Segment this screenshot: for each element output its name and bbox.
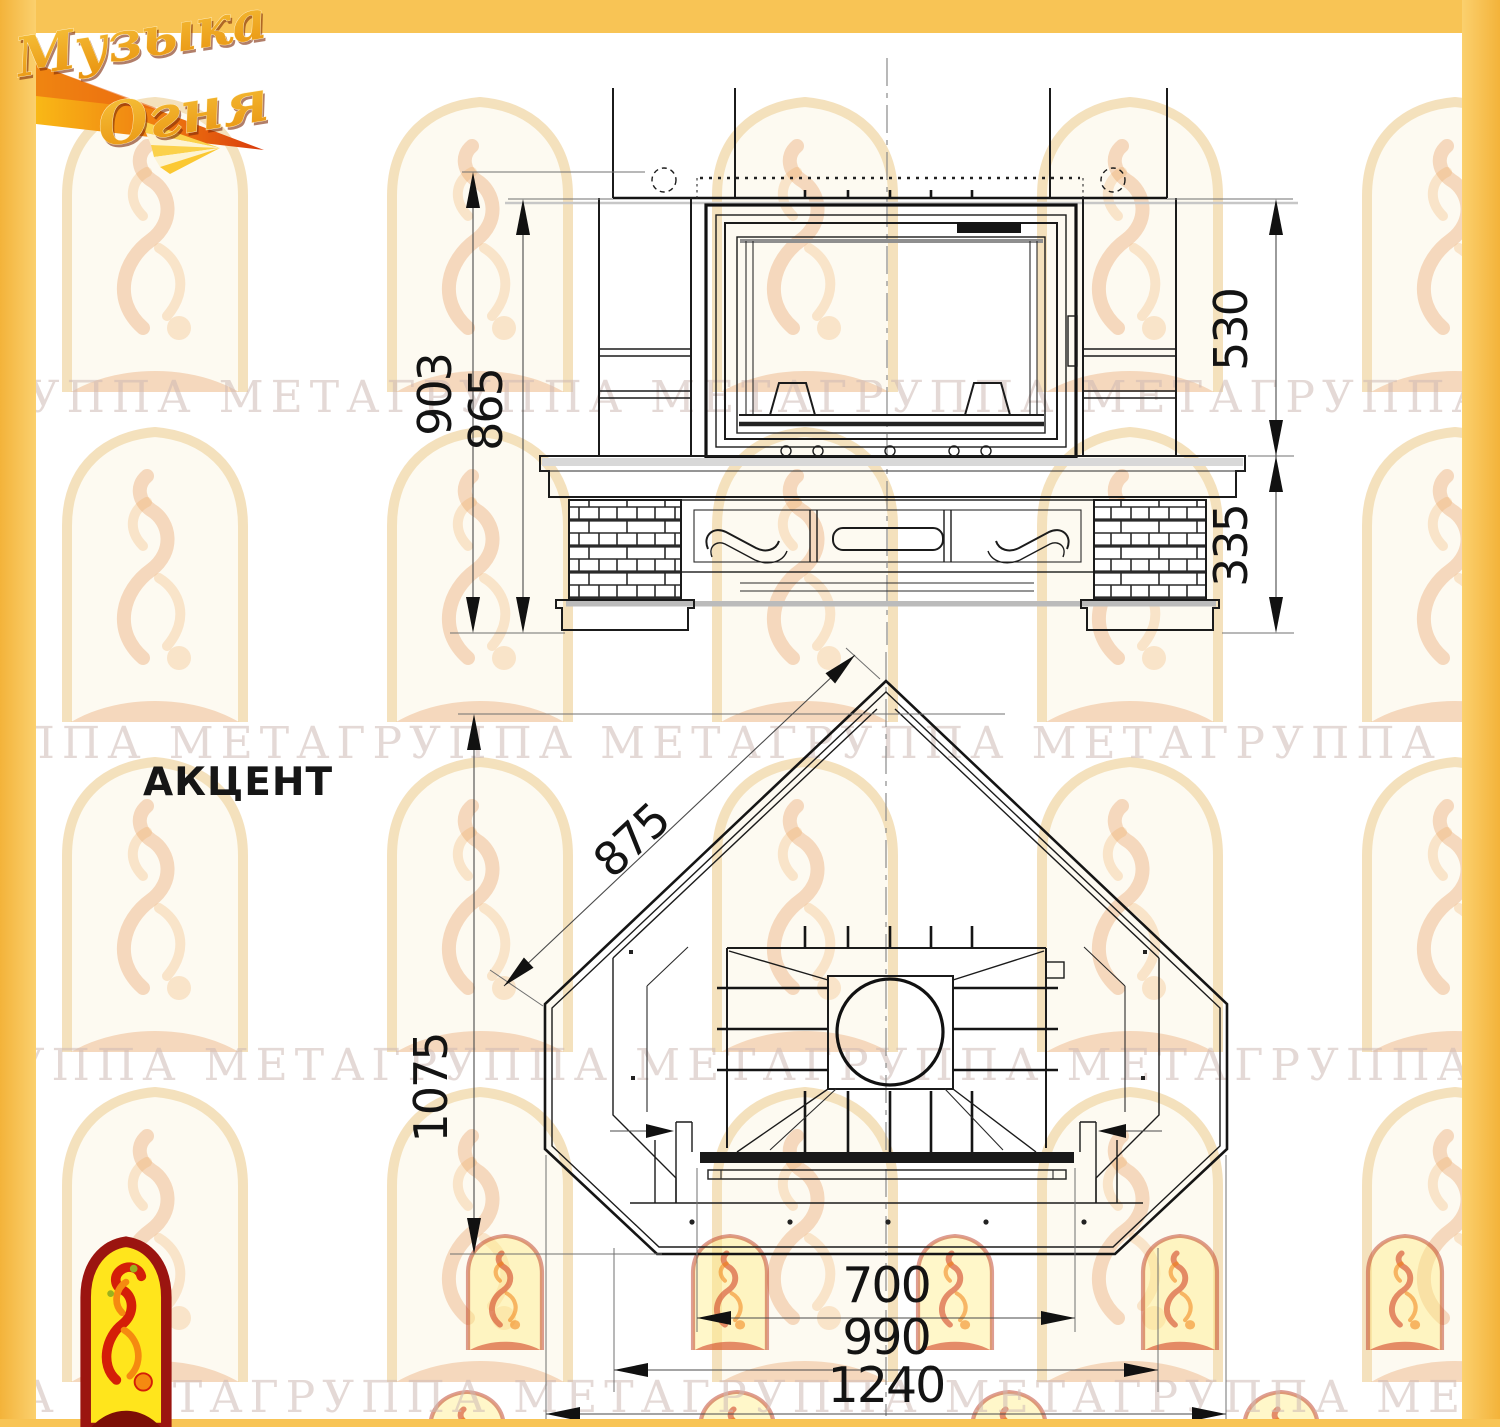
apron-scroll-left — [706, 530, 779, 550]
apron-scroll-right — [996, 530, 1069, 550]
dim-overall-height-label: 903 — [408, 354, 462, 436]
dim-top-section-label: 530 — [1204, 289, 1258, 371]
firebird-arch-icon — [86, 1242, 167, 1427]
dim-diagonal-label: 875 — [583, 793, 680, 888]
brick-pillar-right — [1094, 500, 1206, 600]
mantel-shelf — [540, 456, 1245, 497]
brand-logo: Музыка Музыка Огня Огня — [12, 0, 282, 182]
brick-pillar-left — [569, 500, 681, 600]
page-border-bottom — [0, 1419, 1500, 1427]
damper-tab — [1046, 962, 1064, 978]
apron-center-slot — [833, 528, 943, 550]
dim-inner-height-label: 865 — [459, 369, 513, 451]
dim-overall-width-label: 1240 — [828, 1357, 945, 1414]
page-border-right — [1462, 0, 1500, 1427]
plan-view-dimensions: 1075 875 700 990 124 — [404, 648, 1226, 1422]
drawing-sheet: ГРУППА МЕТАГРУППА МЕТАГРУППА МЕТАГРУППА … — [0, 0, 1500, 1427]
plan-firebox-insert — [700, 926, 1074, 1179]
flue-outlet — [837, 979, 943, 1085]
dim-depth-label: 1075 — [404, 1033, 458, 1142]
andirons — [770, 383, 1010, 415]
plan-view: 1075 875 700 990 124 — [404, 648, 1227, 1422]
firebox-door — [706, 205, 1077, 457]
footer-emblem — [78, 1236, 174, 1427]
dim-base-section-label: 335 — [1204, 505, 1258, 587]
chimney-hood — [505, 88, 1298, 203]
page-border-left — [0, 0, 36, 1427]
dim-opening-label: 700 — [842, 1257, 930, 1314]
model-title: АКЦЕНТ — [143, 760, 333, 805]
front-view: 903 865 530 335 — [408, 58, 1298, 645]
firebox-brand-plate — [957, 222, 1021, 233]
door-front-bar — [700, 1152, 1074, 1163]
